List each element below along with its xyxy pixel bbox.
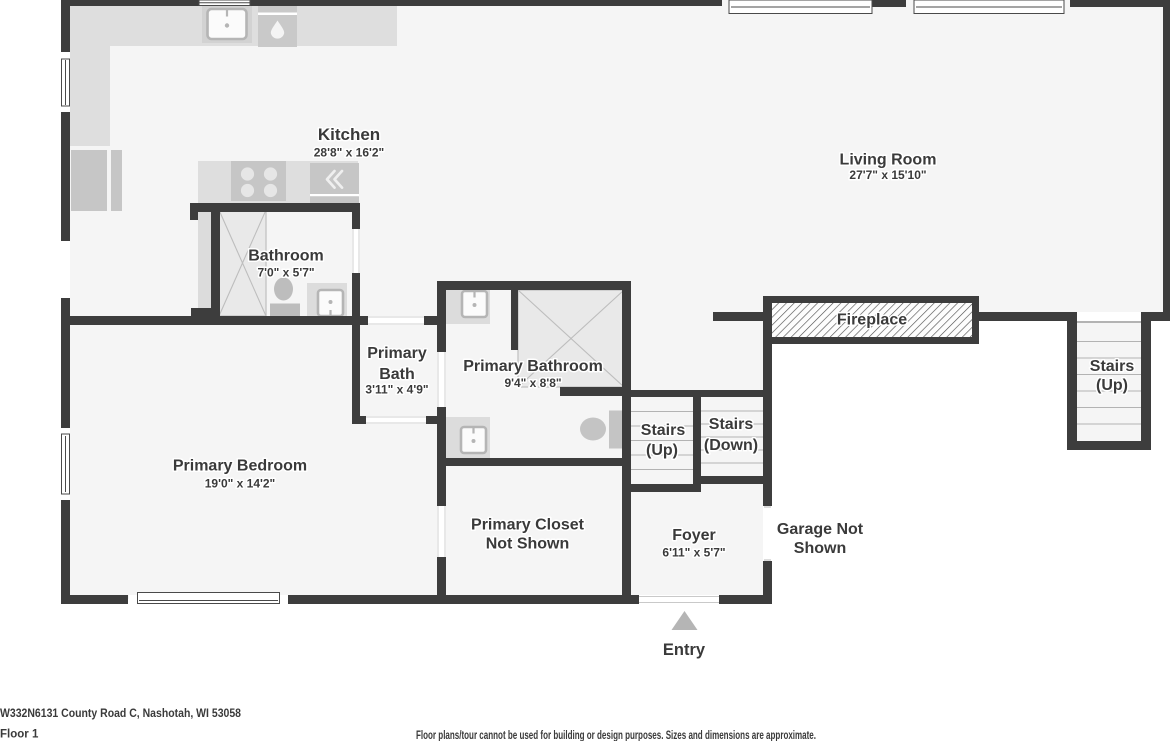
svg-text:9'4" x 8'8": 9'4" x 8'8" bbox=[504, 376, 561, 390]
svg-text:W332N6131 County Road C, Nasho: W332N6131 County Road C, Nashotah, WI 53… bbox=[0, 708, 242, 720]
svg-text:Stairs: Stairs bbox=[709, 416, 754, 433]
svg-text:Living Room: Living Room bbox=[840, 152, 937, 169]
svg-text:Bath: Bath bbox=[379, 366, 415, 383]
svg-text:Floor 1: Floor 1 bbox=[0, 729, 39, 741]
svg-text:Entry: Entry bbox=[663, 641, 706, 659]
svg-text:Stairs: Stairs bbox=[1090, 358, 1135, 375]
svg-text:3'11" x 4'9": 3'11" x 4'9" bbox=[365, 383, 428, 397]
svg-text:Primary Bathroom: Primary Bathroom bbox=[463, 358, 603, 375]
svg-text:Garage Not: Garage Not bbox=[777, 521, 864, 538]
svg-text:(Up): (Up) bbox=[1096, 377, 1128, 394]
svg-text:Fireplace: Fireplace bbox=[837, 312, 907, 329]
svg-text:(Down): (Down) bbox=[704, 437, 758, 454]
svg-text:Stairs: Stairs bbox=[641, 422, 686, 439]
svg-text:19'0" x 14'2": 19'0" x 14'2" bbox=[205, 477, 275, 491]
svg-text:6'11" x 5'7": 6'11" x 5'7" bbox=[662, 546, 725, 560]
svg-text:Not Shown: Not Shown bbox=[486, 536, 570, 553]
svg-text:Primary: Primary bbox=[367, 345, 427, 362]
svg-text:Floor plans/tour cannot be use: Floor plans/tour cannot be used for buil… bbox=[416, 730, 816, 741]
svg-text:27'7" x 15'10": 27'7" x 15'10" bbox=[849, 168, 926, 182]
svg-text:(Up): (Up) bbox=[646, 442, 678, 459]
svg-text:Primary Closet: Primary Closet bbox=[471, 517, 585, 534]
svg-text:Primary Bedroom: Primary Bedroom bbox=[173, 458, 307, 475]
svg-text:Bathroom: Bathroom bbox=[248, 248, 324, 265]
svg-text:Shown: Shown bbox=[794, 540, 846, 557]
svg-text:7'0" x 5'7": 7'0" x 5'7" bbox=[257, 266, 314, 280]
svg-text:28'8" x 16'2": 28'8" x 16'2" bbox=[314, 146, 384, 160]
svg-text:Foyer: Foyer bbox=[672, 527, 716, 544]
svg-text:Kitchen: Kitchen bbox=[318, 125, 380, 144]
